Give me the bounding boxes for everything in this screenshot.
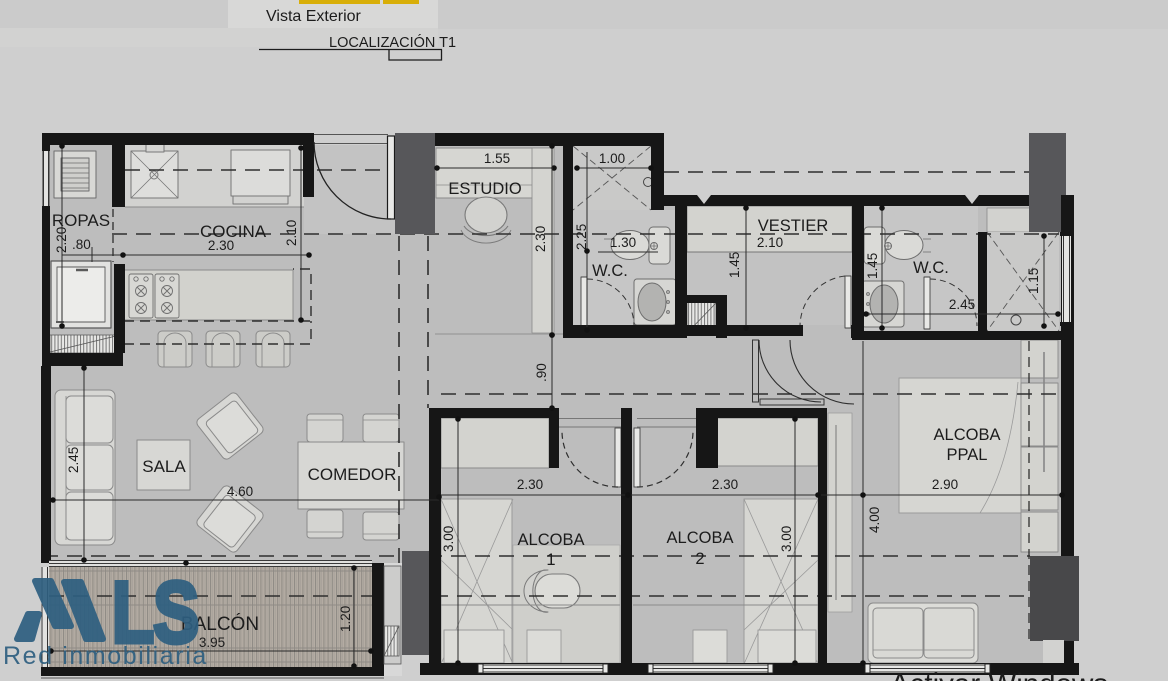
svg-text:1.45: 1.45 (865, 253, 880, 279)
svg-text:Activar Windows: Activar Windows (890, 668, 1108, 681)
svg-text:2.45: 2.45 (949, 297, 975, 312)
svg-text:PPAL: PPAL (947, 446, 988, 464)
svg-text:1.55: 1.55 (484, 151, 510, 166)
svg-text:.80: .80 (72, 237, 91, 252)
svg-text:2: 2 (695, 550, 704, 568)
svg-text:VESTIER: VESTIER (758, 217, 829, 235)
svg-text:1.15: 1.15 (1026, 268, 1041, 294)
svg-text:Red inmobiliaria: Red inmobiliaria (3, 642, 208, 670)
svg-text:ALCOBA: ALCOBA (667, 529, 734, 547)
svg-text:2.25: 2.25 (574, 224, 589, 250)
svg-text:1.45: 1.45 (727, 252, 742, 278)
svg-text:W.C.: W.C. (913, 259, 949, 277)
svg-text:1.20: 1.20 (338, 606, 353, 632)
svg-text:2.30: 2.30 (208, 238, 234, 253)
svg-text:2.20: 2.20 (54, 227, 69, 253)
svg-text:2.10: 2.10 (757, 235, 783, 250)
svg-text:3.00: 3.00 (441, 526, 456, 552)
svg-text:2.30: 2.30 (712, 477, 738, 492)
svg-text:1: 1 (546, 551, 555, 569)
svg-text:ALCOBA: ALCOBA (518, 531, 585, 549)
svg-text:LOCALIZACIÓN T1: LOCALIZACIÓN T1 (329, 34, 456, 51)
svg-text:3.00: 3.00 (779, 526, 794, 552)
svg-text:4.60: 4.60 (227, 484, 253, 499)
svg-text:2.10: 2.10 (284, 220, 299, 246)
svg-text:4.00: 4.00 (867, 507, 882, 533)
svg-text:1.30: 1.30 (610, 235, 636, 250)
svg-text:.90: .90 (534, 363, 549, 382)
svg-text:ESTUDIO: ESTUDIO (448, 180, 522, 198)
svg-text:2.30: 2.30 (517, 477, 543, 492)
svg-text:ALCOBA: ALCOBA (934, 426, 1001, 444)
svg-text:2.45: 2.45 (66, 447, 81, 473)
svg-text:SALA: SALA (142, 457, 186, 476)
svg-text:COMEDOR: COMEDOR (308, 465, 397, 484)
svg-text:Vista Exterior: Vista Exterior (266, 8, 362, 25)
svg-text:2.90: 2.90 (932, 477, 958, 492)
svg-text:W.C.: W.C. (592, 262, 628, 280)
svg-text:1.00: 1.00 (599, 151, 625, 166)
svg-text:2.30: 2.30 (533, 226, 548, 252)
